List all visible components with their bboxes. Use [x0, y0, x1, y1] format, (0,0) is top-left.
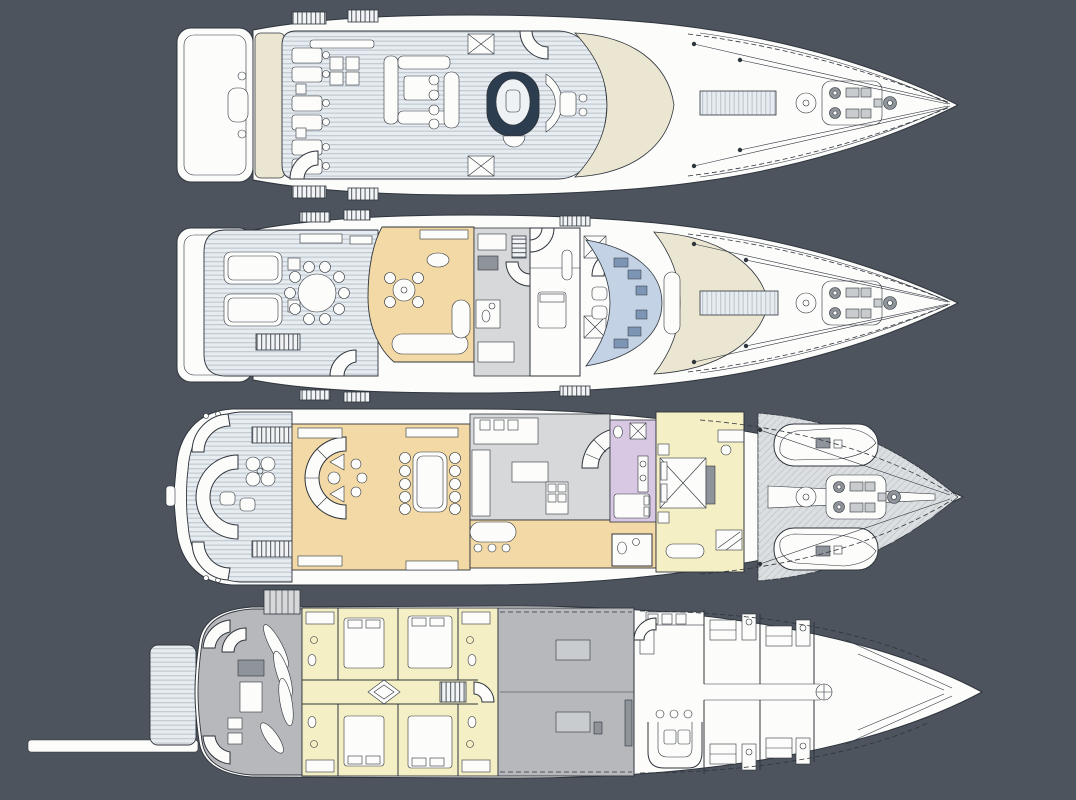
lower-stairs [440, 682, 466, 702]
aft-stairs [256, 334, 300, 350]
bow-walkway [700, 291, 778, 315]
armchair [240, 498, 255, 511]
master-stateroom [656, 412, 744, 572]
helm-seat [592, 287, 607, 300]
tv-cabinet [706, 466, 715, 504]
mast-base [664, 272, 680, 334]
salon-console [298, 556, 342, 566]
engine-room [498, 608, 634, 776]
capstan [796, 293, 816, 313]
transom-gate [166, 486, 175, 506]
crew-cabin [766, 738, 810, 764]
captain-cabin [530, 228, 580, 376]
capstan [796, 93, 816, 113]
vanity-desk [718, 430, 744, 442]
aft-overhang [255, 33, 285, 178]
swim-platform [150, 645, 196, 745]
deck-plans-svg [0, 0, 1076, 800]
sun-deck-transom-platform [177, 28, 253, 182]
galley [470, 414, 622, 520]
pantry [474, 228, 530, 376]
engine [556, 712, 590, 732]
guest-cabins [302, 608, 498, 776]
lower-deck-plan [28, 590, 982, 778]
armchair [220, 492, 235, 505]
capstan [796, 487, 816, 507]
foredeck [758, 413, 958, 581]
yacht-deck-plans-image [0, 0, 1076, 800]
helm-seat [592, 306, 607, 319]
master-sofa [666, 544, 704, 558]
engine [556, 640, 590, 660]
sun-deck-plan [177, 10, 958, 200]
bow-thruster [816, 684, 832, 700]
bow-walkway [700, 91, 776, 115]
bridge-deck-plan [177, 210, 958, 402]
main-deck-plan [166, 409, 963, 585]
deck-bench [310, 40, 374, 48]
crew-cabin [766, 620, 810, 646]
tv-console [420, 230, 468, 239]
master-bathroom [610, 420, 656, 522]
salon-console [298, 428, 342, 438]
lounge-chair [427, 253, 449, 267]
